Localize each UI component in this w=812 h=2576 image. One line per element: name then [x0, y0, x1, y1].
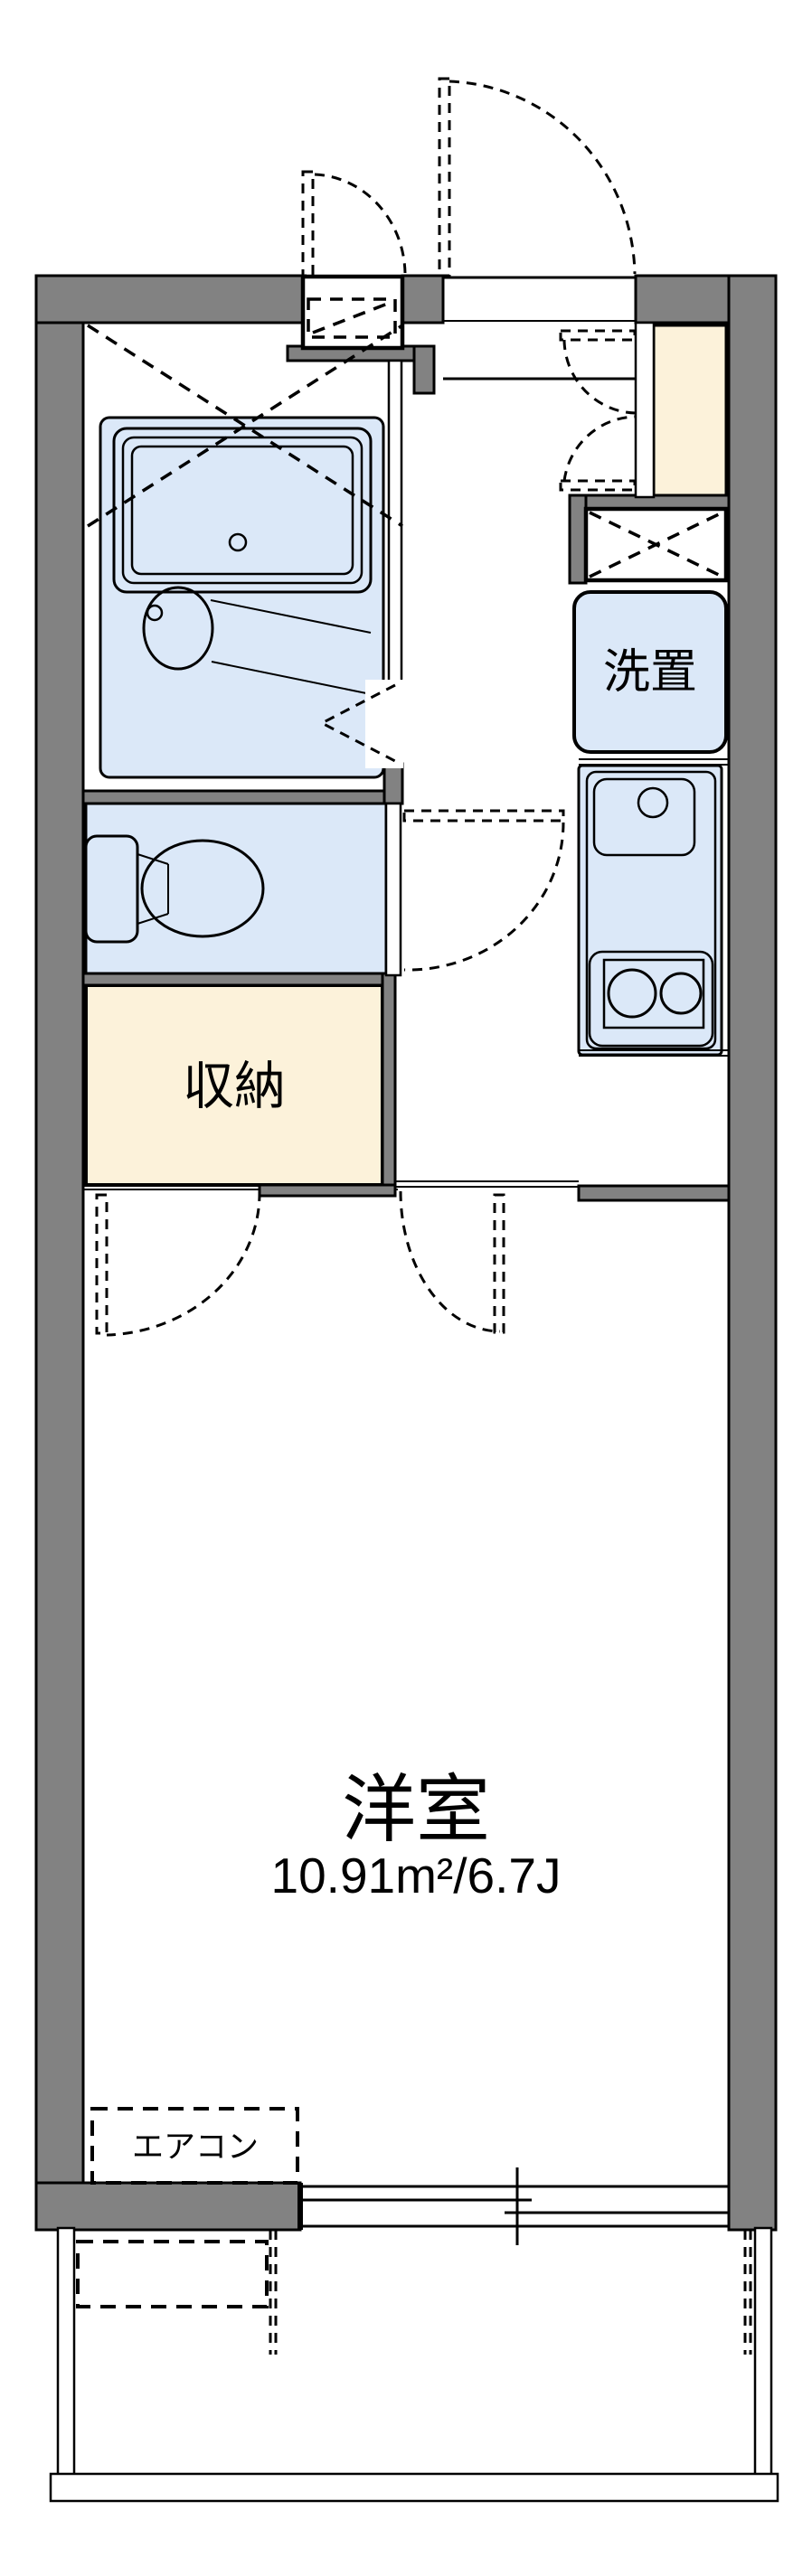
toilet-door-leaf — [404, 811, 563, 821]
bathroom-unit — [100, 418, 383, 777]
storage-door-swing — [107, 1191, 260, 1335]
shoe-cabinet-door-upper-swing — [564, 340, 636, 413]
toilet-hall-wall — [386, 804, 401, 975]
wall-right — [729, 276, 776, 2230]
bath-toilet-corner-wall — [384, 764, 402, 804]
wall-bottom-left — [36, 2183, 300, 2230]
shoe-cabinet-front — [636, 323, 654, 497]
room-door-leaf — [495, 1195, 504, 1332]
balcony-wall-left — [58, 2228, 74, 2476]
bath-toilet-divider — [83, 791, 384, 804]
kitchen-counter — [579, 766, 722, 1055]
balcony — [51, 2228, 778, 2501]
toilet-door-swing — [404, 823, 563, 970]
laundry-label: 洗置 — [603, 646, 697, 699]
shoe-cabinet-door-lower-swing — [564, 417, 636, 481]
toilet-room — [86, 804, 386, 974]
shoe-cabinet-door-lower-leaf — [561, 481, 635, 490]
entry-kitchen-wall-v — [570, 495, 586, 583]
toilet-storage-divider — [83, 973, 395, 985]
window-left-jamb — [297, 2183, 303, 2230]
entrance-door-swing — [449, 81, 635, 274]
storage-bottom-stub — [260, 1185, 395, 1196]
wall-left — [36, 276, 83, 2230]
hall-room-wall — [579, 1186, 729, 1200]
balcony-railing — [51, 2474, 778, 2501]
window-symbol — [297, 2167, 729, 2245]
meterbox-door-leaf — [303, 172, 313, 276]
meterbox-door-swing — [315, 174, 405, 273]
floorplan-drawing: 洗置 収納 洋室 10.91m²/6.7J エアコン — [0, 0, 812, 2576]
entrance-door-leaf — [439, 79, 449, 276]
bathroom-door-gap — [365, 680, 403, 768]
western-room-label: 洋室 — [342, 1769, 490, 1851]
wall-top-left — [36, 276, 303, 323]
hall-corner-wall — [414, 346, 434, 393]
aircon-label: エアコン — [132, 2129, 259, 2165]
wall-top-center — [402, 276, 443, 323]
balcony-wall-right — [755, 2228, 771, 2476]
outdoor-unit-space — [78, 2242, 267, 2307]
shoe-cabinet-door-upper-leaf — [561, 331, 635, 340]
bathroom-hall-wall — [389, 361, 401, 682]
storage-label: 収納 — [183, 1058, 286, 1115]
storage-right-wall — [382, 973, 395, 1190]
floorplan-page: 洗置 収納 洋室 10.91m²/6.7J エアコン — [0, 0, 812, 2576]
genkan-step — [654, 325, 726, 497]
storage-door-leaf — [97, 1195, 107, 1333]
room-door-swing — [401, 1191, 500, 1331]
western-room-size-label: 10.91m²/6.7J — [270, 1847, 561, 1904]
